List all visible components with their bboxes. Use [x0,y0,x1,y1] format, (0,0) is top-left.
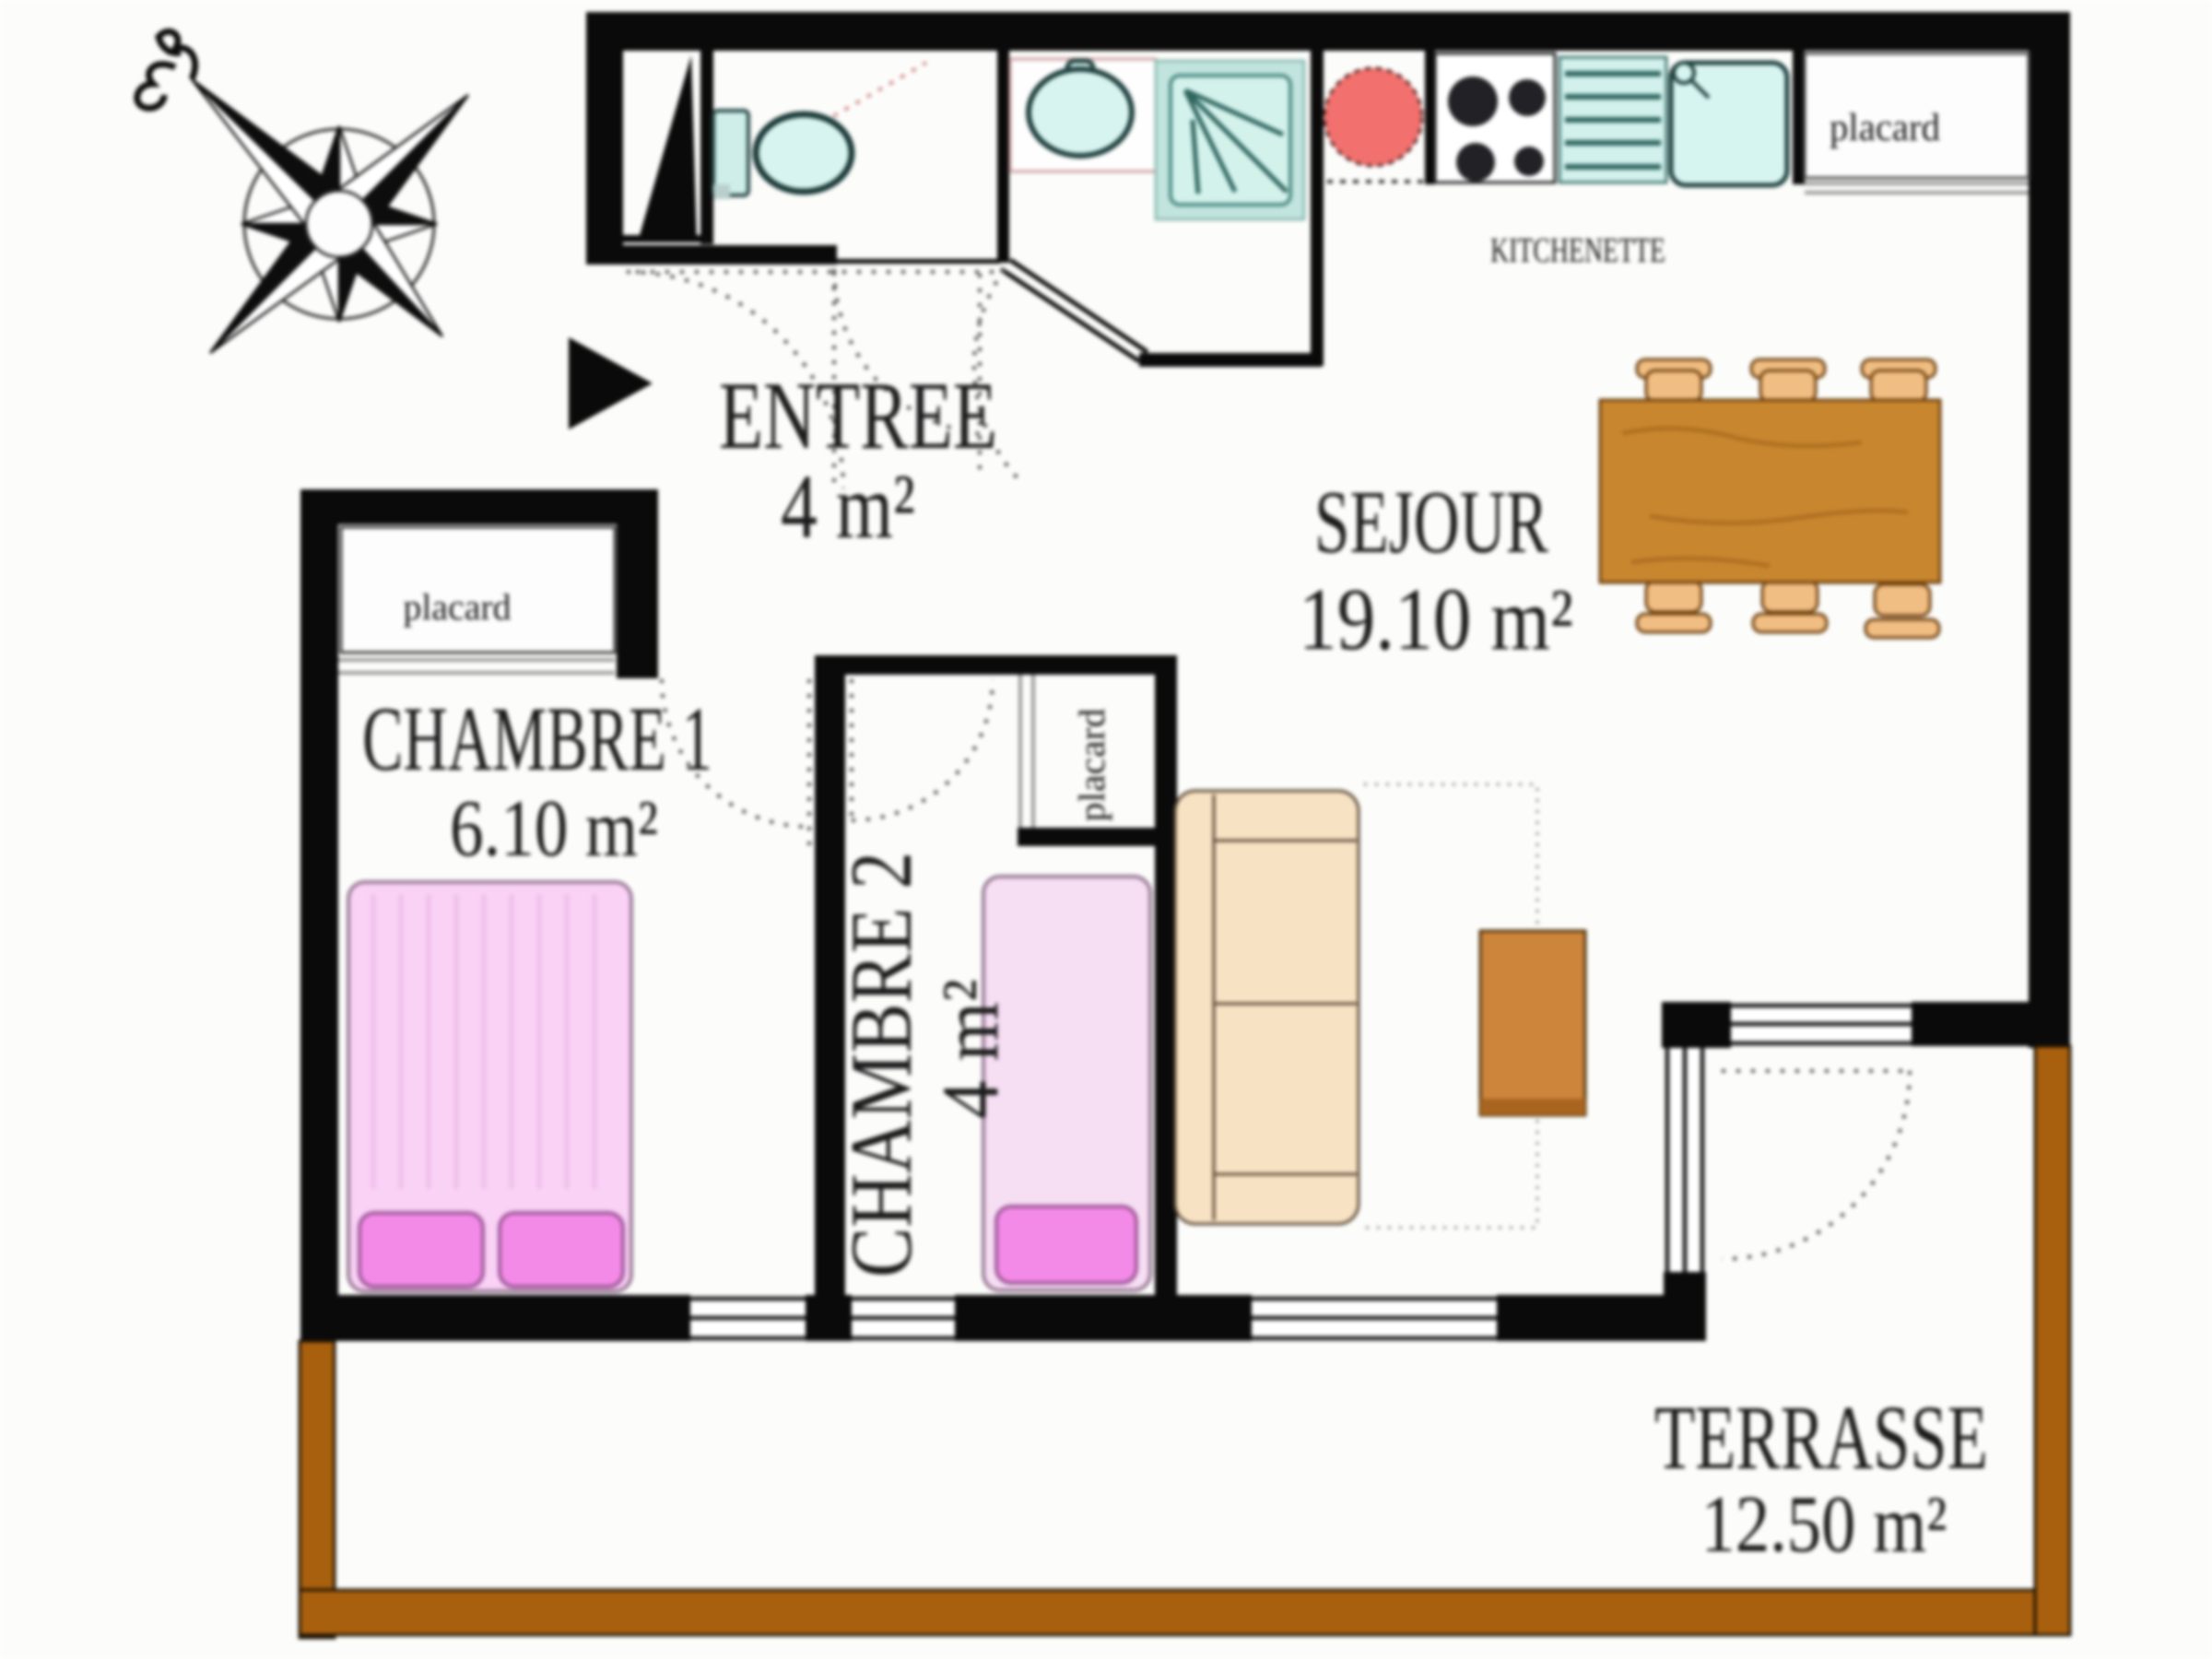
svg-text:19.10 m²: 19.10 m² [1299,570,1573,668]
svg-text:4 m²: 4 m² [781,455,915,558]
svg-text:ENTREE: ENTREE [719,361,997,469]
svg-text:placard: placard [404,586,512,628]
svg-text:CHAMBRE 1: CHAMBRE 1 [362,688,712,790]
svg-text:4 m²: 4 m² [926,979,1016,1119]
svg-text:placard: placard [1830,107,1940,149]
svg-text:CHAMBRE 2: CHAMBRE 2 [832,852,930,1277]
svg-text:SEJOUR: SEJOUR [1314,473,1548,572]
svg-text:KITCHENETTE: KITCHENETTE [1490,231,1665,270]
svg-text:TERRASSE: TERRASSE [1654,1386,1988,1488]
svg-text:12.50 m²: 12.50 m² [1701,1480,1947,1570]
svg-text:6.10 m²: 6.10 m² [450,784,658,874]
svg-text:placard: placard [1071,709,1112,822]
